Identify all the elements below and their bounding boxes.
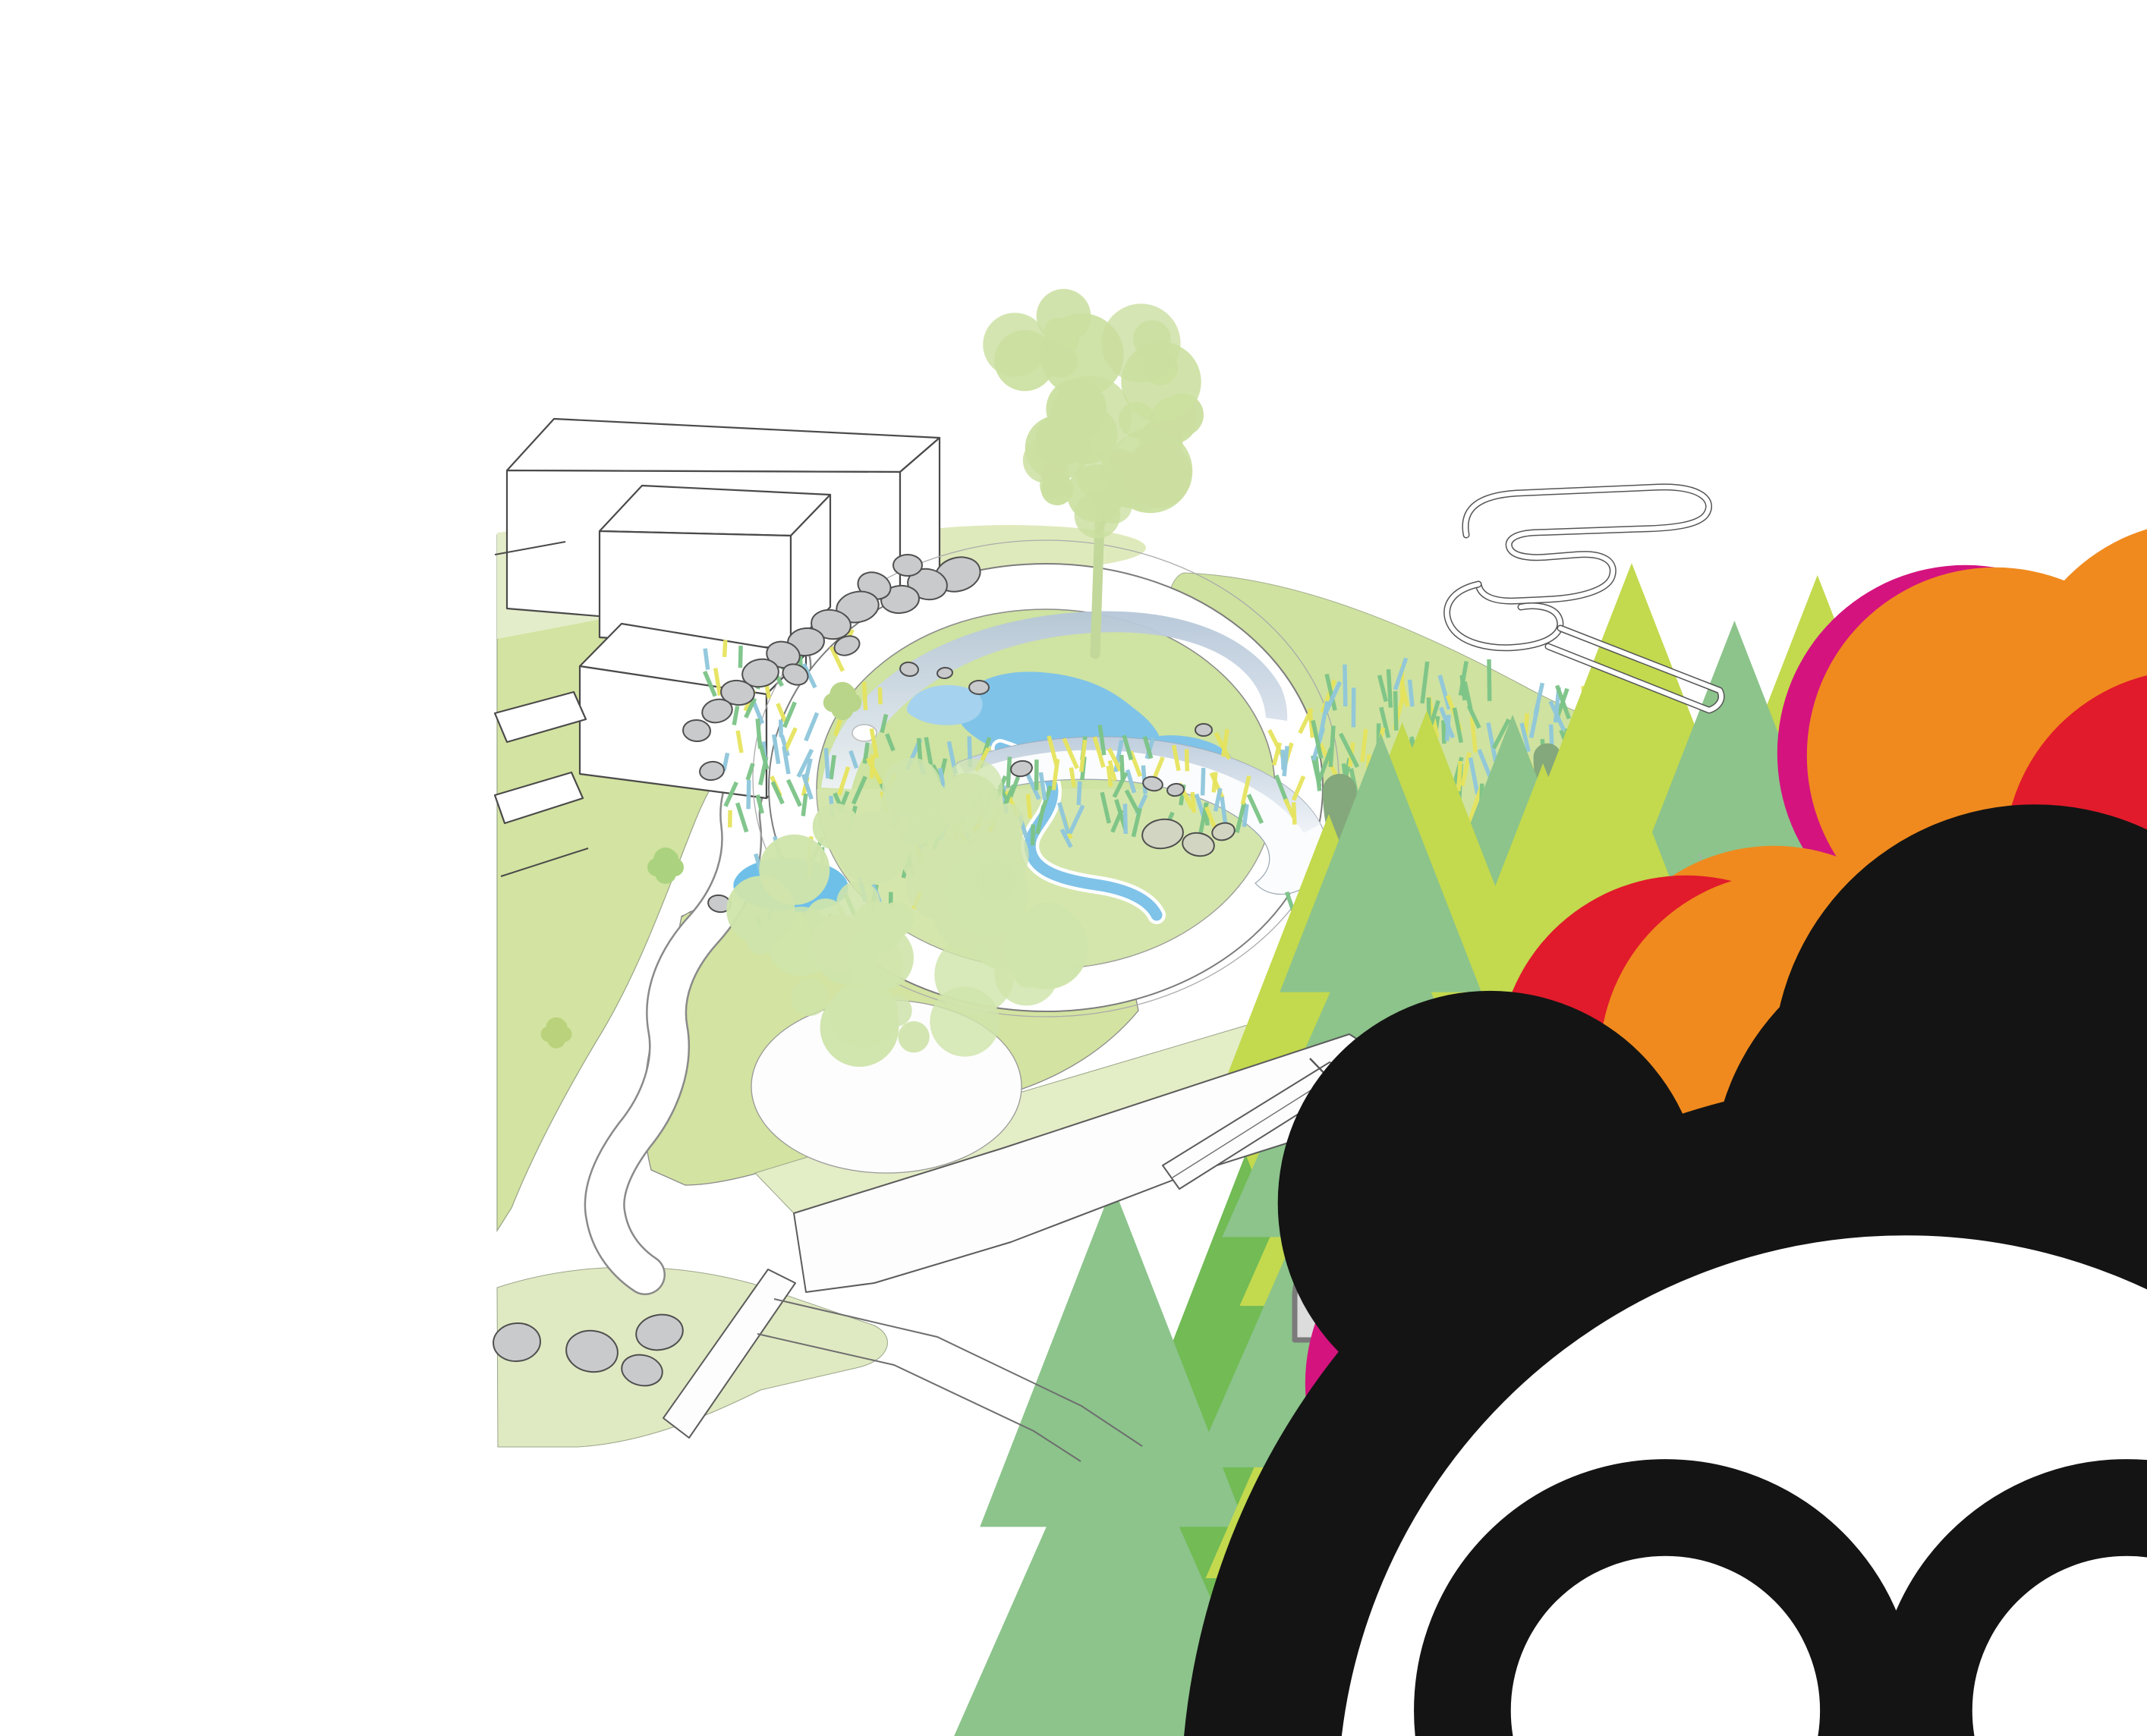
bamboo-stick (1214, 772, 1216, 793)
boulder (1195, 724, 1212, 736)
site-plan-illustration (0, 0, 2147, 1736)
bamboo-stick (864, 682, 866, 710)
bamboo-stick (1187, 749, 1188, 771)
bamboo-stick (1192, 792, 1194, 813)
bamboo-stick (826, 748, 828, 778)
bamboo-stick (1459, 761, 1461, 791)
bamboo-stick (803, 794, 806, 816)
bamboo-stick (880, 687, 880, 704)
barn2-roof (600, 486, 830, 536)
bamboo-stick (1033, 825, 1034, 846)
bamboo-stick (1125, 804, 1125, 834)
bamboo-stick (1108, 766, 1110, 787)
bamboo-stick (1489, 659, 1490, 701)
bamboo-stick (725, 640, 726, 657)
bamboo-stick (1028, 794, 1031, 819)
boulder (969, 681, 989, 694)
barn-roof (507, 419, 940, 472)
bamboo-stick (740, 646, 741, 668)
bamboo-stick (1203, 768, 1204, 795)
bamboo-stick (705, 649, 708, 670)
bamboo-stick (757, 719, 760, 748)
bamboo-stick (1294, 802, 1295, 825)
boulder (893, 555, 922, 576)
tree-canopy (983, 289, 1204, 539)
bamboo-stick (1330, 726, 1333, 767)
bamboo-stick (1389, 669, 1391, 707)
bamboo-stick (748, 780, 749, 809)
bamboo-stick (1443, 720, 1444, 744)
bamboo-stick (1071, 768, 1074, 788)
bamboo-stick (1008, 757, 1009, 788)
bamboo-stick (1078, 782, 1080, 805)
bamboo-stick (1410, 680, 1413, 706)
bamboo-stick (1396, 691, 1396, 731)
bamboo-stick (1345, 665, 1346, 706)
masterplan-canvas (0, 0, 2147, 1736)
